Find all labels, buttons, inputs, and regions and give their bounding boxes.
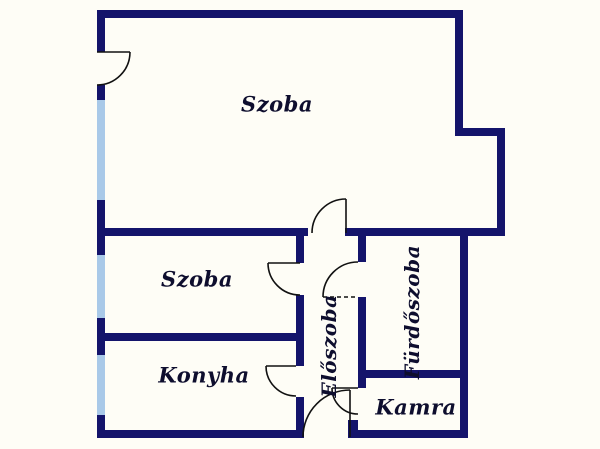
room-szoba-1: Szoba [105,18,455,228]
window-szoba-2 [97,255,105,318]
wall-right-upper [455,10,463,132]
room-label-eloszoba: Előszoba [317,294,341,397]
room-label-kamra: Kamra [375,395,456,420]
room-szoba-2: Szoba [105,236,296,333]
wall-szoba2-konyha [97,333,304,341]
room-label-szoba-1: Szoba [241,92,313,117]
room-label-szoba-2: Szoba [161,267,233,292]
room-kamra: Kamra [366,378,460,430]
wall-left-segment [97,10,105,52]
window-konyha [97,355,105,415]
wall-right-lower [460,236,468,438]
room-konyha: Konyha [105,341,296,430]
floor-plan: Szoba Szoba Konyha Előszoba Fürdőszoba K… [0,0,600,449]
wall-divider-right [345,228,505,236]
wall-bottom-right [348,430,468,438]
wall-right-bump [497,128,505,236]
room-label-furdoszoba: Fürdőszoba [400,245,424,379]
wall-left-segment [97,85,105,100]
wall-top [97,10,463,18]
wall-eloszoba-west [296,236,304,263]
wall-bottom-left [97,430,304,438]
wall-eloszoba-west [296,295,304,366]
wall-left-segment [97,200,105,255]
room-eloszoba: Előszoba [304,236,358,430]
wall-eloszoba-east [358,236,366,262]
wall-divider-left [97,228,308,236]
room-furdoszoba: Fürdőszoba [366,236,460,370]
window-szoba-1 [97,100,105,200]
room-label-konyha: Konyha [158,363,249,388]
